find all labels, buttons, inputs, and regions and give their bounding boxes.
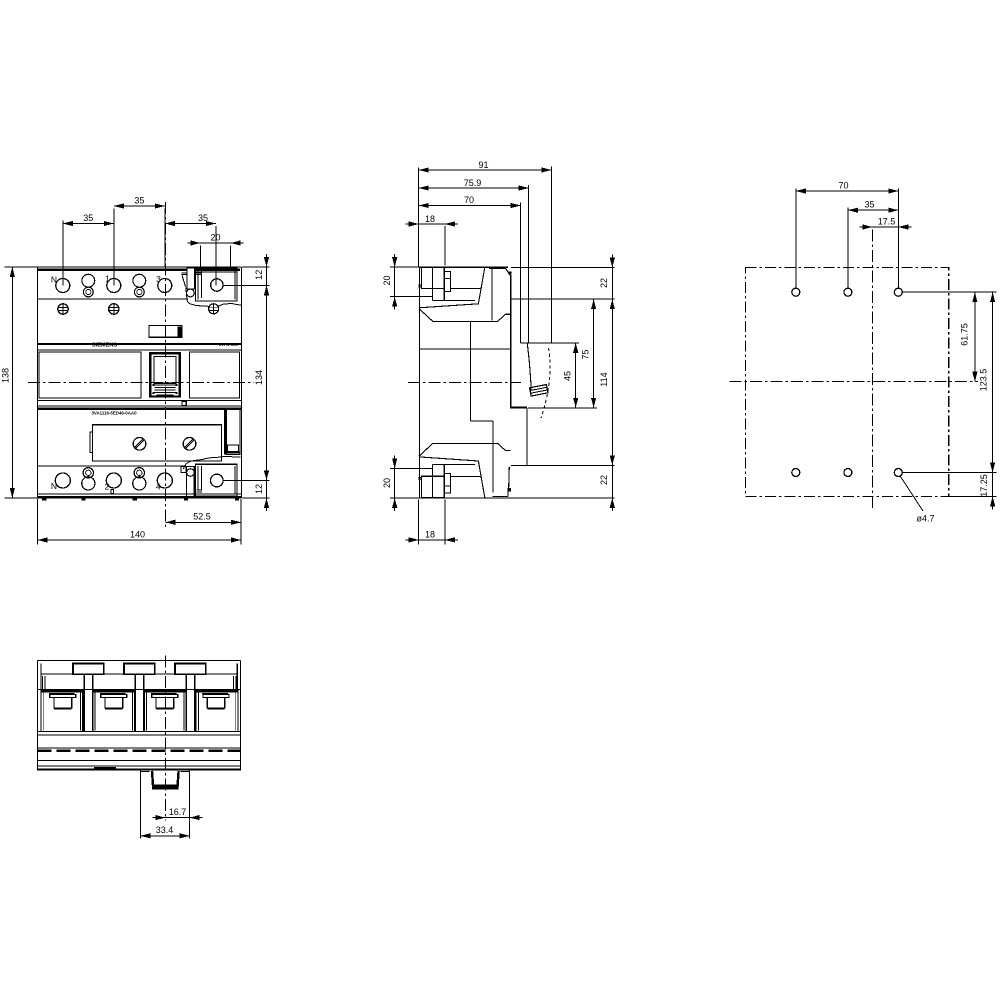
svg-text:35: 35 bbox=[134, 195, 144, 205]
svg-text:12: 12 bbox=[254, 484, 264, 494]
svg-text:35: 35 bbox=[198, 213, 208, 223]
svg-text:20: 20 bbox=[382, 478, 392, 488]
svg-text:35: 35 bbox=[864, 200, 874, 210]
svg-text:134: 134 bbox=[254, 370, 264, 385]
svg-text:35: 35 bbox=[83, 213, 93, 223]
svg-text:4: 4 bbox=[156, 482, 161, 492]
svg-text:138: 138 bbox=[1, 368, 11, 383]
svg-text:91: 91 bbox=[478, 160, 488, 170]
svg-text:61.75: 61.75 bbox=[960, 323, 970, 346]
svg-text:17.5: 17.5 bbox=[878, 216, 896, 226]
svg-text:33.4: 33.4 bbox=[156, 825, 174, 835]
svg-text:18: 18 bbox=[425, 529, 435, 539]
svg-text:20: 20 bbox=[210, 232, 220, 242]
svg-text:75.9: 75.9 bbox=[464, 178, 482, 188]
svg-text:140: 140 bbox=[130, 529, 145, 539]
svg-text:SIEMENS: SIEMENS bbox=[92, 342, 117, 348]
svg-text:3VA1-IEC: 3VA1-IEC bbox=[219, 342, 239, 347]
svg-text:123.5: 123.5 bbox=[979, 369, 989, 392]
svg-text:20: 20 bbox=[382, 275, 392, 285]
svg-text:70: 70 bbox=[838, 180, 848, 190]
svg-text:75: 75 bbox=[581, 349, 591, 359]
svg-text:N: N bbox=[51, 275, 57, 285]
svg-text:70: 70 bbox=[464, 195, 474, 205]
svg-text:N: N bbox=[51, 481, 57, 491]
svg-text:22: 22 bbox=[599, 278, 609, 288]
svg-text:52.5: 52.5 bbox=[193, 512, 211, 522]
svg-text:114: 114 bbox=[599, 372, 609, 386]
svg-text:3: 3 bbox=[156, 274, 161, 284]
svg-text:12: 12 bbox=[254, 270, 264, 280]
svg-text:45: 45 bbox=[563, 371, 573, 381]
svg-text:ø4.7: ø4.7 bbox=[917, 514, 935, 524]
svg-text:2: 2 bbox=[105, 482, 110, 492]
svg-text:18: 18 bbox=[425, 214, 435, 224]
svg-text:3VA1116-5ED46-0AA0: 3VA1116-5ED46-0AA0 bbox=[91, 411, 137, 416]
svg-text:22: 22 bbox=[599, 475, 609, 485]
svg-text:17.25: 17.25 bbox=[979, 474, 989, 497]
svg-text:16.7: 16.7 bbox=[169, 807, 187, 817]
svg-text:1: 1 bbox=[105, 274, 110, 284]
